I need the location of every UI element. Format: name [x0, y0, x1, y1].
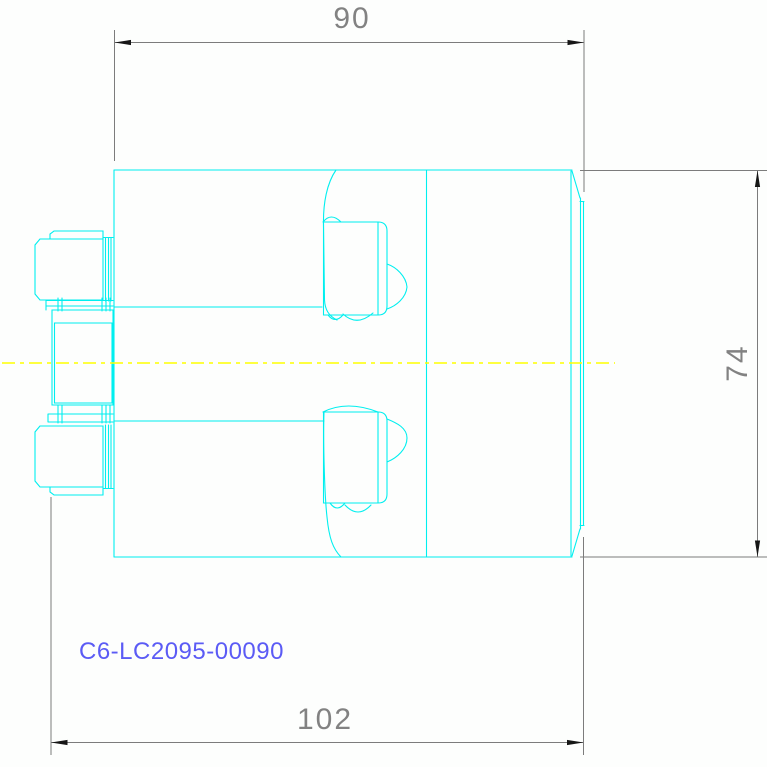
- bottom-boss-side-arc: [324, 412, 341, 557]
- top-connector-tab: [50, 231, 103, 239]
- arrow-left-icon: [115, 40, 132, 45]
- bottom-connector-body: [35, 426, 103, 487]
- arrow-down-icon: [755, 541, 760, 558]
- bottom-boss-under-arc-small: [330, 503, 345, 508]
- arrow-right-icon: [568, 40, 585, 45]
- top-boss-under-arc-large: [343, 313, 373, 320]
- top-connector-body: [35, 239, 103, 300]
- top-connector-flanges: [106, 238, 112, 301]
- right-chamfer-bottom: [572, 529, 580, 556]
- top-boss-side-arc: [323, 170, 337, 320]
- bottom-boss-lobe: [387, 419, 407, 462]
- bottom-boss-under-arc-large: [345, 505, 371, 512]
- upper-neck-band: [46, 301, 113, 311]
- top-boss-hump: [323, 217, 341, 222]
- part-number-text: C6-LC2095-00090: [79, 640, 284, 664]
- center-block-outer: [52, 310, 113, 405]
- arrow-up-icon: [755, 171, 760, 188]
- cad-drawing-viewport: 90 74 102 C6-LC2095-00090: [0, 0, 767, 767]
- bottom-connector-flanges: [106, 425, 112, 488]
- bottom-boss-hump: [323, 406, 378, 412]
- arrow-right-bottom-icon: [567, 740, 584, 745]
- arrow-left-bottom-icon: [51, 740, 68, 745]
- right-chamfer-top: [572, 171, 580, 198]
- bottom-width-dimension-label: 102: [280, 705, 370, 735]
- top-width-dimension-label: 90: [308, 4, 396, 34]
- top-boss-lobe: [387, 264, 407, 309]
- right-height-dimension-label: 74: [703, 328, 767, 398]
- bottom-connector-tab: [50, 487, 103, 495]
